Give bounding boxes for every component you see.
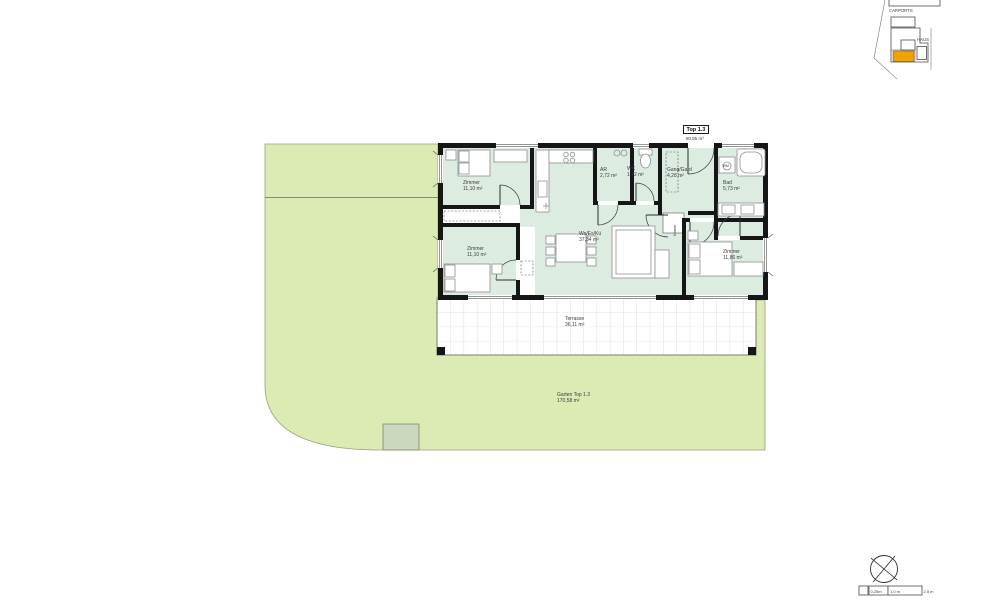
- room-label-wohn-ess-kueche: Wo/Es/Kü 37,34 m²: [579, 231, 601, 243]
- unit-title-box: Top 1.3: [683, 125, 709, 134]
- north-compass-icon: [871, 556, 898, 583]
- highlighted-unit: [893, 51, 914, 62]
- carport-building: [889, 0, 940, 6]
- unit-total-area: 80,85 m²: [686, 136, 704, 141]
- washing-machine-label: WM: [723, 164, 729, 168]
- room-label-gang-garderobe: Gang/Gard 4,28 m²: [667, 167, 692, 179]
- floorplan-drawing: Kamin WM CARPORTS HAUS 0,25m 1,0 m 2,5 m: [0, 0, 1000, 600]
- haus-label: HAUS: [917, 37, 929, 42]
- scale-label-large: 2,5 m: [924, 589, 935, 594]
- room-area: 11,10 m²: [463, 186, 482, 192]
- outdoor-area: 170,58 m²: [557, 398, 590, 404]
- room-area: 2,72 m²: [600, 173, 617, 179]
- terrace: [437, 298, 756, 355]
- garden-utility-box: [383, 424, 419, 450]
- room-area: 37,34 m²: [579, 237, 601, 243]
- room-area: 1,72 m²: [627, 172, 644, 178]
- garden-label: Garten Top 1.3 170,58 m²: [557, 392, 590, 404]
- room-label-bad: Bad 5,73 m²: [723, 180, 740, 192]
- room-area: 4,28 m²: [667, 173, 692, 179]
- room-area: 11,10 m²: [467, 252, 486, 258]
- scale-label-mid: 1,0 m: [890, 589, 901, 594]
- site-overview-map: CARPORTS HAUS: [874, 0, 940, 79]
- terrace-label: Terrasse 36,11 m²: [565, 316, 584, 328]
- room-area: 11,86 m²: [723, 255, 742, 261]
- carports-label: CARPORTS: [889, 8, 913, 13]
- floorplan-canvas: Kamin WM CARPORTS HAUS 0,25m 1,0 m 2,5 m…: [0, 0, 1000, 600]
- room-label-abstellraum: AR 2,72 m²: [600, 167, 617, 179]
- outdoor-area: 36,11 m²: [565, 322, 584, 328]
- chimney-label: Kamin: [672, 225, 677, 236]
- terrace-post: [748, 347, 756, 355]
- room-label-zimmer-rechts: Zimmer 11,86 m²: [723, 249, 742, 261]
- room-label-zimmer-bl: Zimmer 11,10 m²: [467, 246, 486, 258]
- room-label-wc: WC 1,72 m²: [627, 166, 644, 178]
- scale-bar: 0,25m 1,0 m 2,5 m: [859, 586, 934, 595]
- scale-label-small: 0,25m: [871, 589, 883, 594]
- terrace-post: [437, 347, 445, 355]
- room-area: 5,73 m²: [723, 186, 740, 192]
- room-label-zimmer-tl: Zimmer 11,10 m²: [463, 180, 482, 192]
